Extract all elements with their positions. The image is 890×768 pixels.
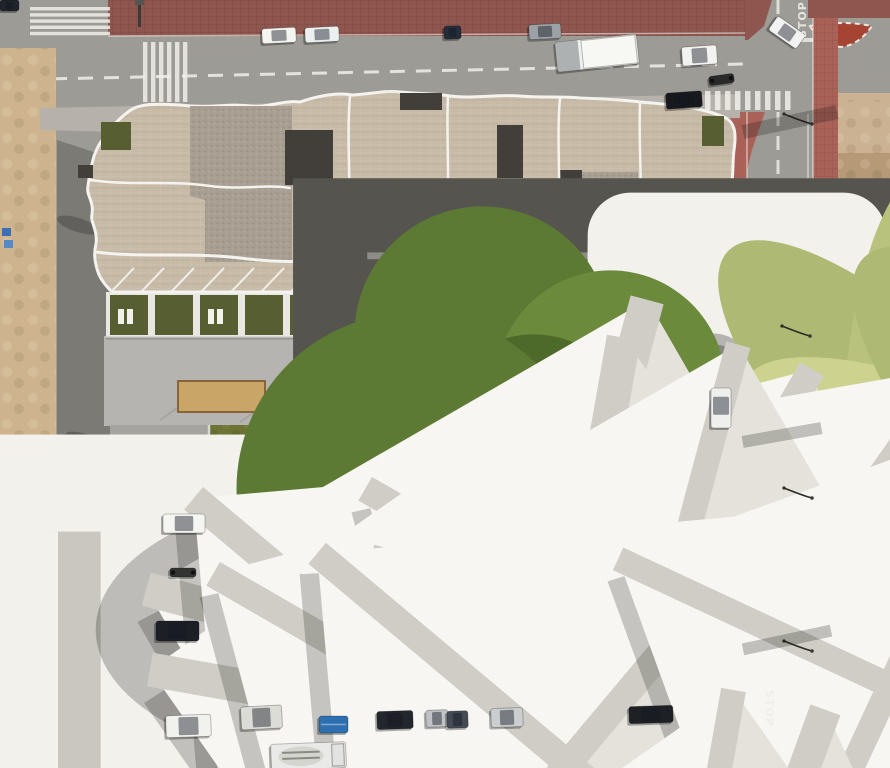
roof-doorway — [78, 165, 93, 178]
crosswalk-bar — [175, 42, 179, 102]
roof-shaft — [285, 130, 333, 185]
car — [442, 26, 462, 42]
car — [154, 621, 199, 643]
scene-svg: STOP STOP — [0, 0, 890, 768]
car — [489, 707, 524, 729]
terrace-garden — [155, 295, 193, 335]
crosswalk-bar — [745, 91, 751, 110]
car — [260, 27, 297, 46]
mixer — [269, 742, 347, 768]
crosswalk-bar — [30, 19, 110, 22]
blue-bin — [2, 228, 11, 236]
crosswalk-bar — [151, 42, 155, 102]
green-roof-patch — [101, 122, 131, 150]
terrace-lounger — [217, 309, 223, 324]
aerial-render: STOP STOP — [0, 0, 890, 768]
roof-access — [400, 93, 442, 110]
crosswalk-bar — [755, 91, 761, 110]
crosswalk-bar — [159, 42, 163, 102]
stop-marking-south: STOP — [763, 690, 776, 727]
crosswalk-bar — [785, 91, 791, 110]
terrace-garden — [245, 295, 283, 335]
terrace-lounger — [127, 309, 133, 324]
dumpster — [317, 716, 348, 735]
crosswalk-bar — [725, 91, 731, 110]
crosswalk-bar — [183, 42, 187, 102]
crosswalk-bar — [715, 91, 721, 110]
blue-bin — [4, 240, 13, 248]
terrace-lounger — [208, 309, 214, 324]
crosswalk-bar — [735, 91, 741, 110]
crosswalk-bar — [705, 91, 711, 110]
crosswalk-bar — [30, 32, 110, 35]
car — [627, 705, 674, 726]
roof-shaft — [497, 125, 523, 178]
car — [0, 0, 19, 13]
crosswalk-bar — [30, 13, 110, 16]
crosswalk-bar — [765, 91, 771, 110]
car — [709, 388, 731, 430]
crosswalk-bar — [30, 7, 110, 10]
crosswalk-bar — [143, 42, 147, 102]
car — [238, 705, 282, 732]
van — [679, 45, 717, 69]
moto — [168, 568, 196, 579]
crosswalk-bar — [167, 42, 171, 102]
car — [527, 23, 562, 42]
car — [375, 710, 414, 731]
car — [445, 711, 469, 731]
car — [303, 26, 340, 45]
stop-marking-north: STOP — [796, 1, 809, 38]
crosswalk-bar — [775, 91, 781, 110]
car — [161, 514, 205, 535]
terrace-lounger — [118, 309, 124, 324]
green-roof-patch — [702, 116, 724, 146]
sand-planter — [178, 381, 265, 412]
car — [424, 710, 449, 730]
crosswalk-bar — [30, 26, 110, 29]
van — [164, 714, 212, 740]
car — [663, 91, 702, 112]
